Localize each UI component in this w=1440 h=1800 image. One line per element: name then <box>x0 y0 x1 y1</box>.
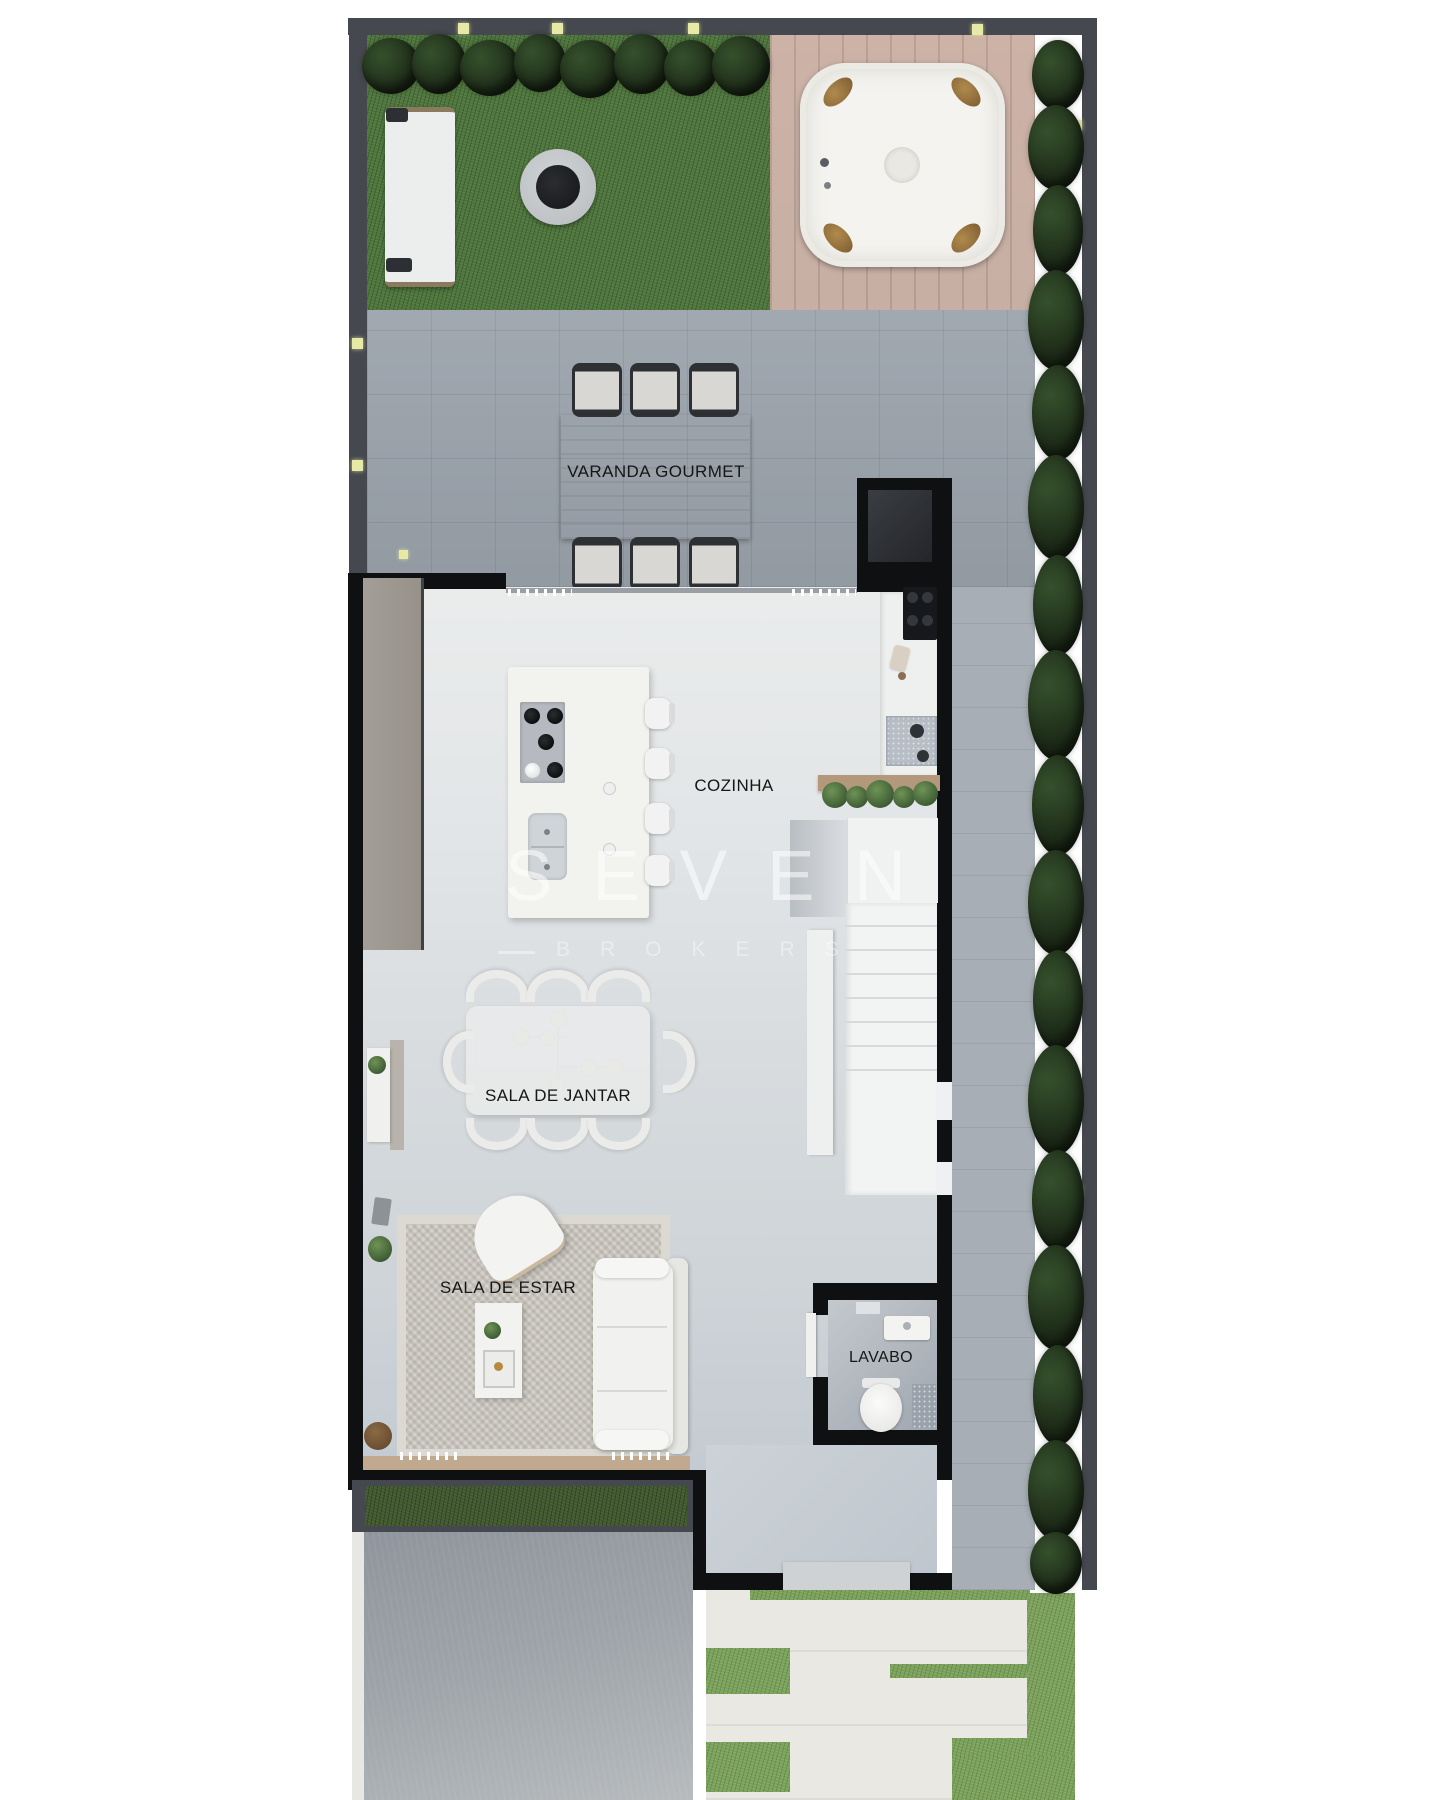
burner <box>538 734 554 750</box>
outdoor-chair <box>572 537 622 591</box>
hedge-bush <box>1028 850 1084 955</box>
hedge-bush <box>1030 1532 1082 1594</box>
burner <box>547 708 563 724</box>
hot-tub-control <box>824 182 831 189</box>
room-label-varanda-gourmet: VARANDA GOURMET <box>567 462 745 482</box>
burner <box>547 762 563 778</box>
side-path <box>952 587 1035 1590</box>
stair-rail <box>807 930 833 1155</box>
hedge-bush <box>1033 1345 1083 1445</box>
hedge-bush <box>412 34 466 94</box>
outdoor-chair <box>689 363 739 417</box>
hedge-bush <box>1028 650 1084 760</box>
walkway-joint <box>750 1590 1030 1600</box>
lavabo-wall-top <box>813 1283 952 1300</box>
bar-stool-back <box>669 808 675 829</box>
lavabo-door <box>806 1313 816 1377</box>
hedge-bush <box>460 40 520 96</box>
right-wall-opening <box>937 1162 952 1195</box>
site-wall-left <box>349 18 367 587</box>
sliding-door-panel <box>792 589 856 596</box>
bar-stool-back <box>669 703 675 724</box>
burner <box>922 615 933 626</box>
stair-treads <box>845 903 937 1071</box>
sliding-door-panel <box>400 1452 458 1460</box>
hedge-bush <box>1033 950 1083 1050</box>
sofa-armrest <box>595 1430 669 1450</box>
site-wall-right <box>1082 18 1097 1590</box>
burner <box>524 708 540 724</box>
outdoor-chair <box>630 537 680 591</box>
toilet <box>860 1384 902 1432</box>
dry-plant <box>364 1422 392 1450</box>
hedge-bush <box>1028 1245 1084 1350</box>
hedge-bush <box>1028 1440 1084 1540</box>
fire-pit-coals <box>536 165 580 209</box>
island-bowl <box>603 782 616 795</box>
driveway <box>364 1532 693 1800</box>
plant <box>913 781 938 806</box>
plant <box>893 786 915 808</box>
sofa <box>593 1262 673 1450</box>
walkway-joint <box>890 1664 1030 1678</box>
hedge-bush <box>664 40 718 96</box>
tray-item <box>494 1362 503 1371</box>
sofa-armrest <box>595 1258 669 1278</box>
plant <box>484 1322 501 1339</box>
kitchen-side-cabinet <box>363 578 424 950</box>
hedge-bush <box>1032 365 1084 460</box>
plant <box>368 1236 392 1262</box>
bar-stool <box>645 803 671 834</box>
right-wall-opening <box>937 1082 952 1120</box>
hedge-bush <box>1028 105 1084 190</box>
entry-threshold <box>783 1562 910 1592</box>
bench-corner-pad <box>386 258 412 272</box>
faucet <box>903 1322 911 1330</box>
vestibule-floor <box>706 1445 937 1573</box>
house-wall-right <box>937 592 952 1480</box>
sofa-cushion-divider <box>597 1326 667 1328</box>
wall-light <box>972 24 983 35</box>
watermark-subtitle: BROKERS <box>556 938 869 962</box>
hedge-bush <box>560 40 620 98</box>
hot-tub-jet-center <box>884 147 920 183</box>
plant <box>368 1056 386 1074</box>
hedge-bush <box>1032 755 1084 855</box>
wall-light <box>552 23 563 34</box>
hedge-bush <box>514 34 566 92</box>
room-label-lavabo: LAVABO <box>849 1349 913 1367</box>
wall-light <box>458 23 469 34</box>
room-label-cozinha: COZINHA <box>694 776 773 796</box>
bar-stool <box>645 698 671 729</box>
front-lawn <box>952 1756 1075 1800</box>
hedge-bush <box>1032 40 1084 110</box>
walkway-joint <box>952 1738 1030 1756</box>
burner <box>922 592 933 603</box>
floor-light <box>399 550 408 559</box>
walkway-joint <box>706 1648 790 1694</box>
hedge-bush <box>1032 1150 1084 1250</box>
sink-basin <box>910 724 924 738</box>
lavabo-shelf <box>856 1302 880 1314</box>
hedge-bush <box>614 34 670 94</box>
wall-light <box>688 23 699 34</box>
bar-stool <box>645 748 671 779</box>
sofa-cushion-divider <box>597 1390 667 1392</box>
hedge-bush <box>1028 270 1084 370</box>
sink-basin <box>917 750 929 762</box>
wall-light <box>352 338 363 349</box>
burner <box>907 592 918 603</box>
cooktop-knob <box>524 762 541 779</box>
counter-item <box>898 672 906 680</box>
burner <box>907 615 918 626</box>
room-label-sala-de-jantar: SALA DE JANTAR <box>485 1086 631 1106</box>
hedge-bush <box>712 36 770 96</box>
walkway-joint <box>706 1742 790 1792</box>
hedge-bush <box>1028 455 1084 560</box>
plant <box>866 780 894 808</box>
sliding-door-panel <box>612 1452 670 1460</box>
hedge-bush <box>1033 185 1083 275</box>
sink-drain <box>544 829 550 835</box>
lavabo-mat <box>912 1384 936 1428</box>
plant <box>846 786 868 808</box>
grass-strip <box>365 1486 687 1526</box>
wall-light <box>352 460 363 471</box>
outdoor-chair <box>630 363 680 417</box>
counter-sink <box>886 716 937 766</box>
plant <box>822 782 848 808</box>
room-label-sala-de-estar: SALA DE ESTAR <box>440 1278 576 1298</box>
bench-corner-pad <box>386 108 408 122</box>
house-wall-left <box>348 587 363 1490</box>
lavabo-wall-left <box>813 1283 828 1315</box>
sliding-door-panel <box>508 589 572 596</box>
lavabo-wall-left <box>813 1377 828 1439</box>
entry-doorway-panel <box>868 490 932 562</box>
curb <box>352 1532 364 1800</box>
watermark-dash <box>498 951 535 954</box>
hedge-bush <box>1028 1045 1084 1155</box>
hot-tub-control <box>820 158 829 167</box>
floor-plan-canvas: SEVEN BROKERS VARANDA GOURMET COZINHA SA… <box>0 0 1440 1800</box>
hedge-bush <box>1033 555 1083 655</box>
bar-stool-back <box>669 753 675 774</box>
watermark-brand: SEVEN <box>505 836 946 917</box>
console-shadow <box>390 1040 404 1150</box>
outdoor-chair <box>689 537 739 591</box>
outdoor-chair <box>572 363 622 417</box>
